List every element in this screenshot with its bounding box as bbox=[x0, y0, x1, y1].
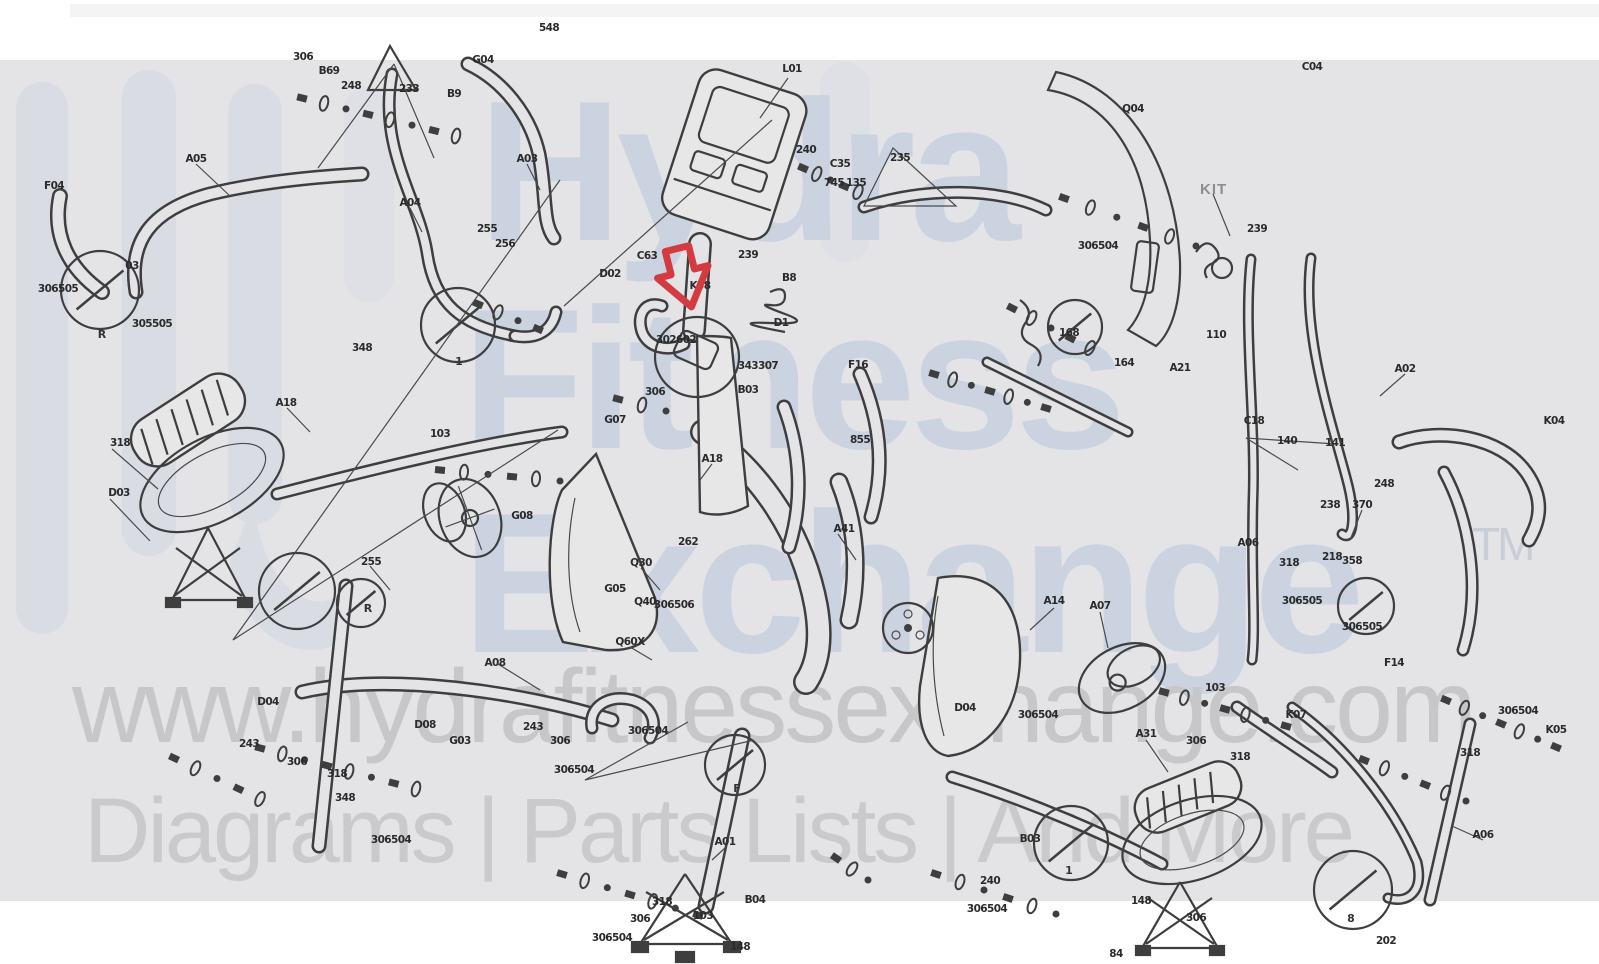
part-label: 306 bbox=[550, 735, 570, 747]
part-label: 235 bbox=[890, 152, 910, 164]
part-label: 855 bbox=[850, 434, 870, 446]
part-label: 348 bbox=[335, 792, 355, 804]
part-label: 240 bbox=[980, 875, 1000, 887]
part-label: 318 bbox=[327, 768, 347, 780]
part-label: 202 bbox=[1376, 935, 1396, 947]
part-label: 745 bbox=[824, 177, 844, 189]
part-label: 256 bbox=[495, 238, 515, 250]
part-label: C18 bbox=[1244, 415, 1265, 427]
part-label: 306504 bbox=[1018, 709, 1059, 721]
detail-circle-letter: 1 bbox=[455, 355, 463, 368]
part-label: A31 bbox=[1136, 728, 1157, 740]
part-label: C04 bbox=[1302, 61, 1323, 73]
part-label: A18 bbox=[702, 453, 723, 465]
part-label: 348 bbox=[352, 342, 372, 354]
part-label: A01 bbox=[715, 836, 736, 848]
part-label: 306 bbox=[1186, 735, 1206, 747]
part-label: 168 bbox=[1059, 327, 1079, 339]
part-label: D1 bbox=[774, 317, 789, 329]
part-label: 370 bbox=[1352, 499, 1372, 511]
part-label: D04 bbox=[954, 702, 976, 714]
part-label: K04 bbox=[1544, 415, 1565, 427]
part-label: B04 bbox=[745, 894, 766, 906]
part-label: A18 bbox=[276, 397, 297, 409]
part-label: Q04 bbox=[1122, 103, 1144, 115]
part-label: D04 bbox=[257, 696, 279, 708]
part-label: A14 bbox=[1044, 595, 1065, 607]
part-label: 306506 bbox=[654, 599, 695, 611]
part-label: D08 bbox=[414, 719, 436, 731]
part-label: 240 bbox=[796, 144, 816, 156]
part-label: 239 bbox=[1247, 223, 1267, 235]
part-label: B03 bbox=[1020, 833, 1041, 845]
part-label: 306505 bbox=[1342, 621, 1383, 633]
part-label: 141 bbox=[1325, 437, 1345, 449]
part-label: G04 bbox=[472, 54, 494, 66]
part-label: A06 bbox=[1473, 829, 1494, 841]
part-label: 306504 bbox=[554, 764, 595, 776]
part-label: 306 bbox=[293, 51, 313, 63]
part-label: 306 bbox=[1186, 912, 1206, 924]
exploded-parts-diagram: Hydra Fitness Exchange TM www.hydrafitne… bbox=[0, 0, 1599, 964]
part-label: B9 bbox=[447, 88, 461, 100]
part-label: 306504 bbox=[1498, 705, 1539, 717]
part-label: 103 bbox=[1205, 682, 1225, 694]
part-label: 248 bbox=[341, 80, 361, 92]
part-label: F14 bbox=[1384, 657, 1404, 669]
part-label: K07 bbox=[1286, 709, 1307, 721]
part-label: A05 bbox=[186, 153, 207, 165]
part-label: A08 bbox=[485, 657, 506, 669]
part-label: 306 bbox=[287, 756, 307, 768]
part-label: A21 bbox=[1170, 362, 1191, 374]
part-label: D03 bbox=[108, 487, 130, 499]
part-label: 306504 bbox=[1078, 240, 1119, 252]
detail-circle-letter: 1 bbox=[1065, 864, 1073, 877]
part-label: 306505 bbox=[1282, 595, 1323, 607]
detail-circle-letter: 8 bbox=[1347, 912, 1355, 925]
part-label: 103 bbox=[693, 910, 713, 922]
part-label: 358 bbox=[1342, 555, 1362, 567]
part-label: 306505 bbox=[38, 283, 79, 295]
part-label: 103 bbox=[430, 428, 450, 440]
part-label: 306 bbox=[630, 913, 650, 925]
part-label: A02 bbox=[1395, 363, 1416, 375]
part-label: 306504 bbox=[967, 903, 1008, 915]
part-label: 84 bbox=[1109, 948, 1123, 960]
part-label: 318 bbox=[1230, 751, 1250, 763]
detail-circle-letter: F bbox=[733, 782, 741, 795]
part-label: G05 bbox=[604, 583, 626, 595]
part-label: 306504 bbox=[592, 932, 633, 944]
part-label: B03 bbox=[738, 384, 759, 396]
part-label: A07 bbox=[1090, 600, 1111, 612]
part-label: D02 bbox=[599, 268, 621, 280]
part-label: F04 bbox=[44, 180, 64, 192]
part-label: G07 bbox=[604, 414, 626, 426]
part-label: 164 bbox=[1114, 357, 1134, 369]
part-label: 343307 bbox=[738, 360, 779, 372]
part-label: K05 bbox=[1546, 724, 1567, 736]
part-label: 135 bbox=[846, 177, 866, 189]
part-label: B8 bbox=[782, 272, 796, 284]
part-label: 239 bbox=[738, 249, 758, 261]
part-label: L01 bbox=[782, 63, 802, 75]
part-label: C35 bbox=[830, 158, 851, 170]
part-label: 318 bbox=[652, 896, 672, 908]
detail-circle-letter: R bbox=[98, 328, 107, 341]
part-label: 110 bbox=[1206, 329, 1226, 341]
part-label: A06 bbox=[1238, 537, 1259, 549]
part-label: 302602 bbox=[656, 334, 697, 346]
part-label: 238 bbox=[1320, 499, 1340, 511]
top-faint-strip bbox=[70, 4, 1599, 17]
part-label: 148 bbox=[1131, 895, 1151, 907]
part-label: A41 bbox=[834, 523, 855, 535]
part-label: 548 bbox=[539, 22, 559, 34]
part-label: 243 bbox=[239, 738, 259, 750]
part-label: 03 bbox=[125, 260, 139, 272]
part-label: 140 bbox=[1277, 435, 1297, 447]
part-label: 218 bbox=[1322, 551, 1342, 563]
part-label: 255 bbox=[477, 223, 497, 235]
part-label: C63 bbox=[637, 250, 658, 262]
part-label: 243 bbox=[523, 721, 543, 733]
part-label: 233 bbox=[399, 83, 419, 95]
part-label: 306504 bbox=[371, 834, 412, 846]
part-label: Q40 bbox=[634, 596, 656, 608]
part-label: 255 bbox=[361, 556, 381, 568]
part-label: 248 bbox=[1374, 478, 1394, 490]
part-label: Q30 bbox=[630, 557, 652, 569]
part-label: 318 bbox=[110, 437, 130, 449]
part-label: A03 bbox=[517, 153, 538, 165]
part-label: A04 bbox=[400, 197, 421, 209]
detail-circle-letter: R bbox=[364, 602, 373, 615]
part-label: F16 bbox=[848, 359, 868, 371]
part-label: 306504 bbox=[628, 725, 669, 737]
parts-diagram-page: Hydra Fitness Exchange TM www.hydrafitne… bbox=[0, 0, 1599, 964]
part-label: 305505 bbox=[132, 318, 173, 330]
part-label: 318 bbox=[1460, 747, 1480, 759]
part-label: 148 bbox=[730, 941, 750, 953]
part-label: 318 bbox=[1279, 557, 1299, 569]
part-label: 306 bbox=[645, 386, 665, 398]
part-label: B69 bbox=[319, 65, 340, 77]
part-label: Q60X bbox=[615, 636, 645, 648]
part-label: G08 bbox=[511, 510, 533, 522]
part-label: 262 bbox=[678, 536, 698, 548]
part-label: G03 bbox=[449, 735, 471, 747]
kit-label: KIT bbox=[1200, 181, 1227, 198]
